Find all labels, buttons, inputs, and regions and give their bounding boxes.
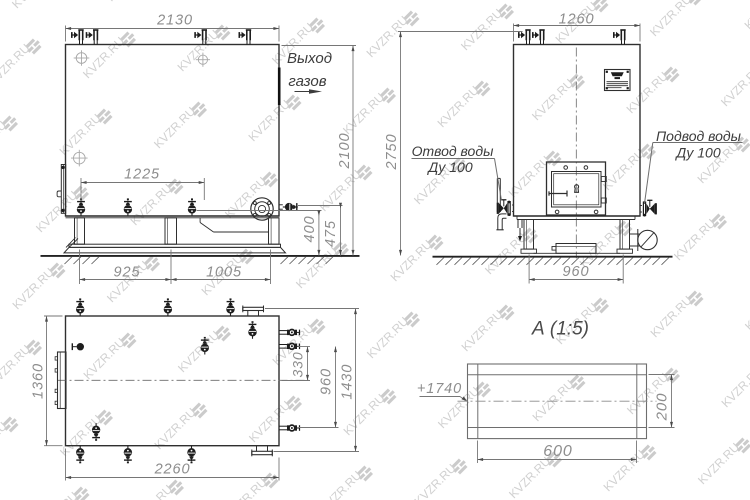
- svg-text:Ду 100: Ду 100: [674, 145, 720, 161]
- svg-text:газов: газов: [288, 73, 326, 90]
- svg-text:1430: 1430: [340, 364, 356, 400]
- svg-text:960: 960: [563, 264, 590, 280]
- svg-text:330: 330: [290, 351, 306, 377]
- svg-text:200: 200: [654, 393, 671, 422]
- svg-text:475: 475: [323, 220, 339, 247]
- svg-text:Ду 100: Ду 100: [426, 159, 472, 175]
- svg-text:925: 925: [114, 265, 141, 281]
- svg-text:Подвод воды: Подвод воды: [656, 128, 742, 144]
- svg-text:600: 600: [543, 443, 572, 460]
- svg-text:2260: 2260: [154, 462, 191, 478]
- svg-text:2100: 2100: [337, 133, 353, 170]
- svg-text:960: 960: [319, 368, 335, 395]
- svg-text:2750: 2750: [384, 134, 400, 171]
- svg-text:2130: 2130: [156, 13, 193, 29]
- svg-text:1360: 1360: [31, 363, 47, 399]
- svg-text:1225: 1225: [124, 166, 160, 182]
- svg-text:400: 400: [302, 216, 318, 243]
- svg-text:Выход: Выход: [287, 50, 332, 67]
- svg-text:1005: 1005: [206, 265, 242, 281]
- svg-text:1260: 1260: [559, 12, 595, 28]
- svg-text:+1740: +1740: [417, 381, 462, 397]
- svg-text:А (1:5): А (1:5): [531, 319, 589, 340]
- svg-text:Отвод воды: Отвод воды: [412, 143, 494, 159]
